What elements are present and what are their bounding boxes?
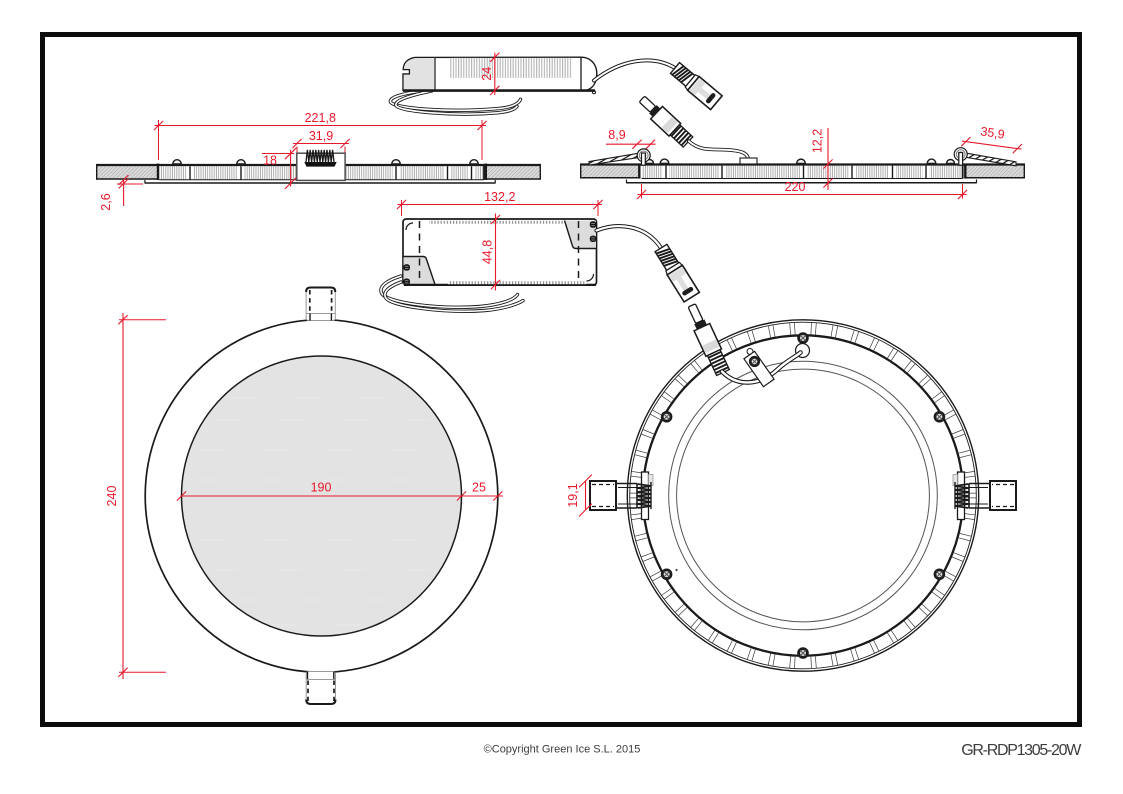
svg-text:18: 18 <box>263 154 277 168</box>
svg-text:25: 25 <box>472 481 486 495</box>
svg-text:132,2: 132,2 <box>484 190 515 204</box>
svg-text:©Copyright Green Ice S.L. 2015: ©Copyright Green Ice S.L. 2015 <box>484 744 641 756</box>
svg-text:19,1: 19,1 <box>566 483 580 507</box>
svg-text:2,6: 2,6 <box>99 193 113 210</box>
svg-text:GR-RDP1305-20W: GR-RDP1305-20W <box>961 742 1082 759</box>
svg-text:35,9: 35,9 <box>980 124 1006 141</box>
svg-text:190: 190 <box>311 481 332 495</box>
svg-text:24: 24 <box>480 67 494 81</box>
svg-text:220: 220 <box>785 180 806 194</box>
svg-text:44,8: 44,8 <box>481 240 495 264</box>
svg-text:240: 240 <box>105 486 119 507</box>
svg-text:8,9: 8,9 <box>608 128 625 142</box>
svg-text:12,2: 12,2 <box>811 129 825 153</box>
svg-text:221,8: 221,8 <box>305 111 336 125</box>
svg-text:31,9: 31,9 <box>309 129 333 143</box>
